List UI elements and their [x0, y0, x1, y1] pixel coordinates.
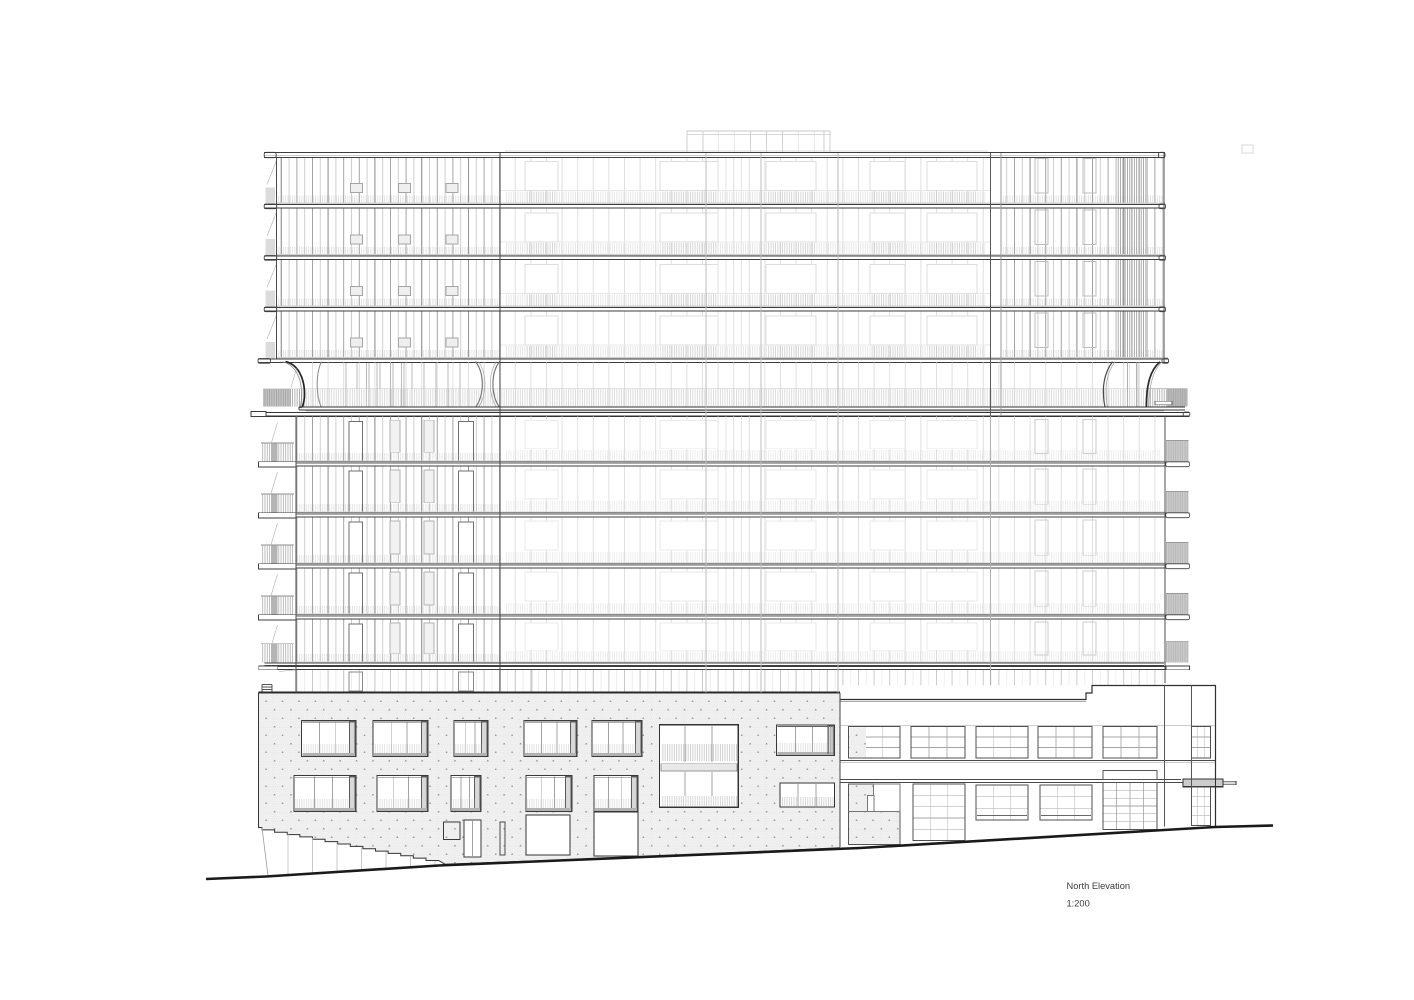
- svg-text:1:200: 1:200: [1067, 899, 1090, 909]
- svg-text:North Elevation: North Elevation: [1067, 881, 1131, 891]
